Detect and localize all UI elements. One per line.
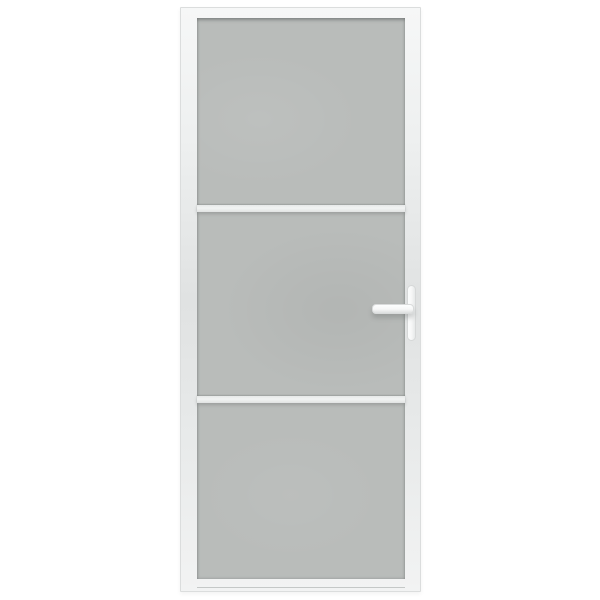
glass-divider-bar-upper [197,205,405,212]
door-handle-lever [372,304,414,314]
glass-divider-bar-lower [197,396,405,403]
product-photo [0,0,600,600]
door [180,7,421,592]
glass-panel [197,18,405,579]
glass-frosted-texture [197,18,405,579]
door-bottom-seam [197,587,405,588]
